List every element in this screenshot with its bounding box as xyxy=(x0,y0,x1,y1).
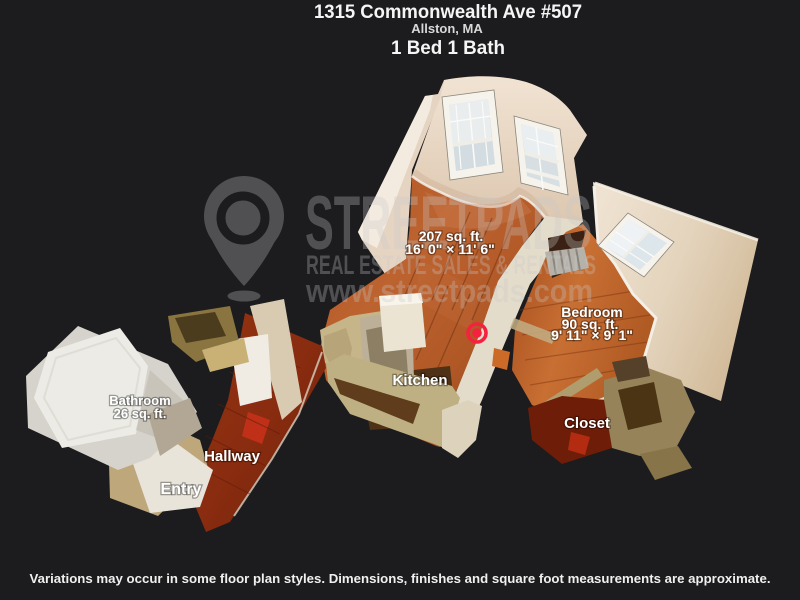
svg-text:www.streetpads.com: www.streetpads.com xyxy=(305,273,593,309)
svg-text:9' 11" × 9' 1": 9' 11" × 9' 1" xyxy=(551,327,633,343)
svg-text:26 sq. ft.: 26 sq. ft. xyxy=(114,406,167,421)
svg-text:Closet: Closet xyxy=(564,415,610,432)
svg-text:Entry: Entry xyxy=(161,481,202,498)
svg-text:Variations may occur in some f: Variations may occur in some floor plan … xyxy=(30,571,771,586)
svg-text:16' 0" × 11' 6": 16' 0" × 11' 6" xyxy=(405,241,495,257)
svg-text:Allston, MA: Allston, MA xyxy=(411,21,483,36)
svg-text:1315 Commonwealth Ave #507: 1315 Commonwealth Ave #507 xyxy=(314,2,582,23)
svg-text:Hallway: Hallway xyxy=(204,448,261,465)
svg-text:Kitchen: Kitchen xyxy=(392,372,447,389)
svg-text:1 Bed 1 Bath: 1 Bed 1 Bath xyxy=(391,38,505,59)
